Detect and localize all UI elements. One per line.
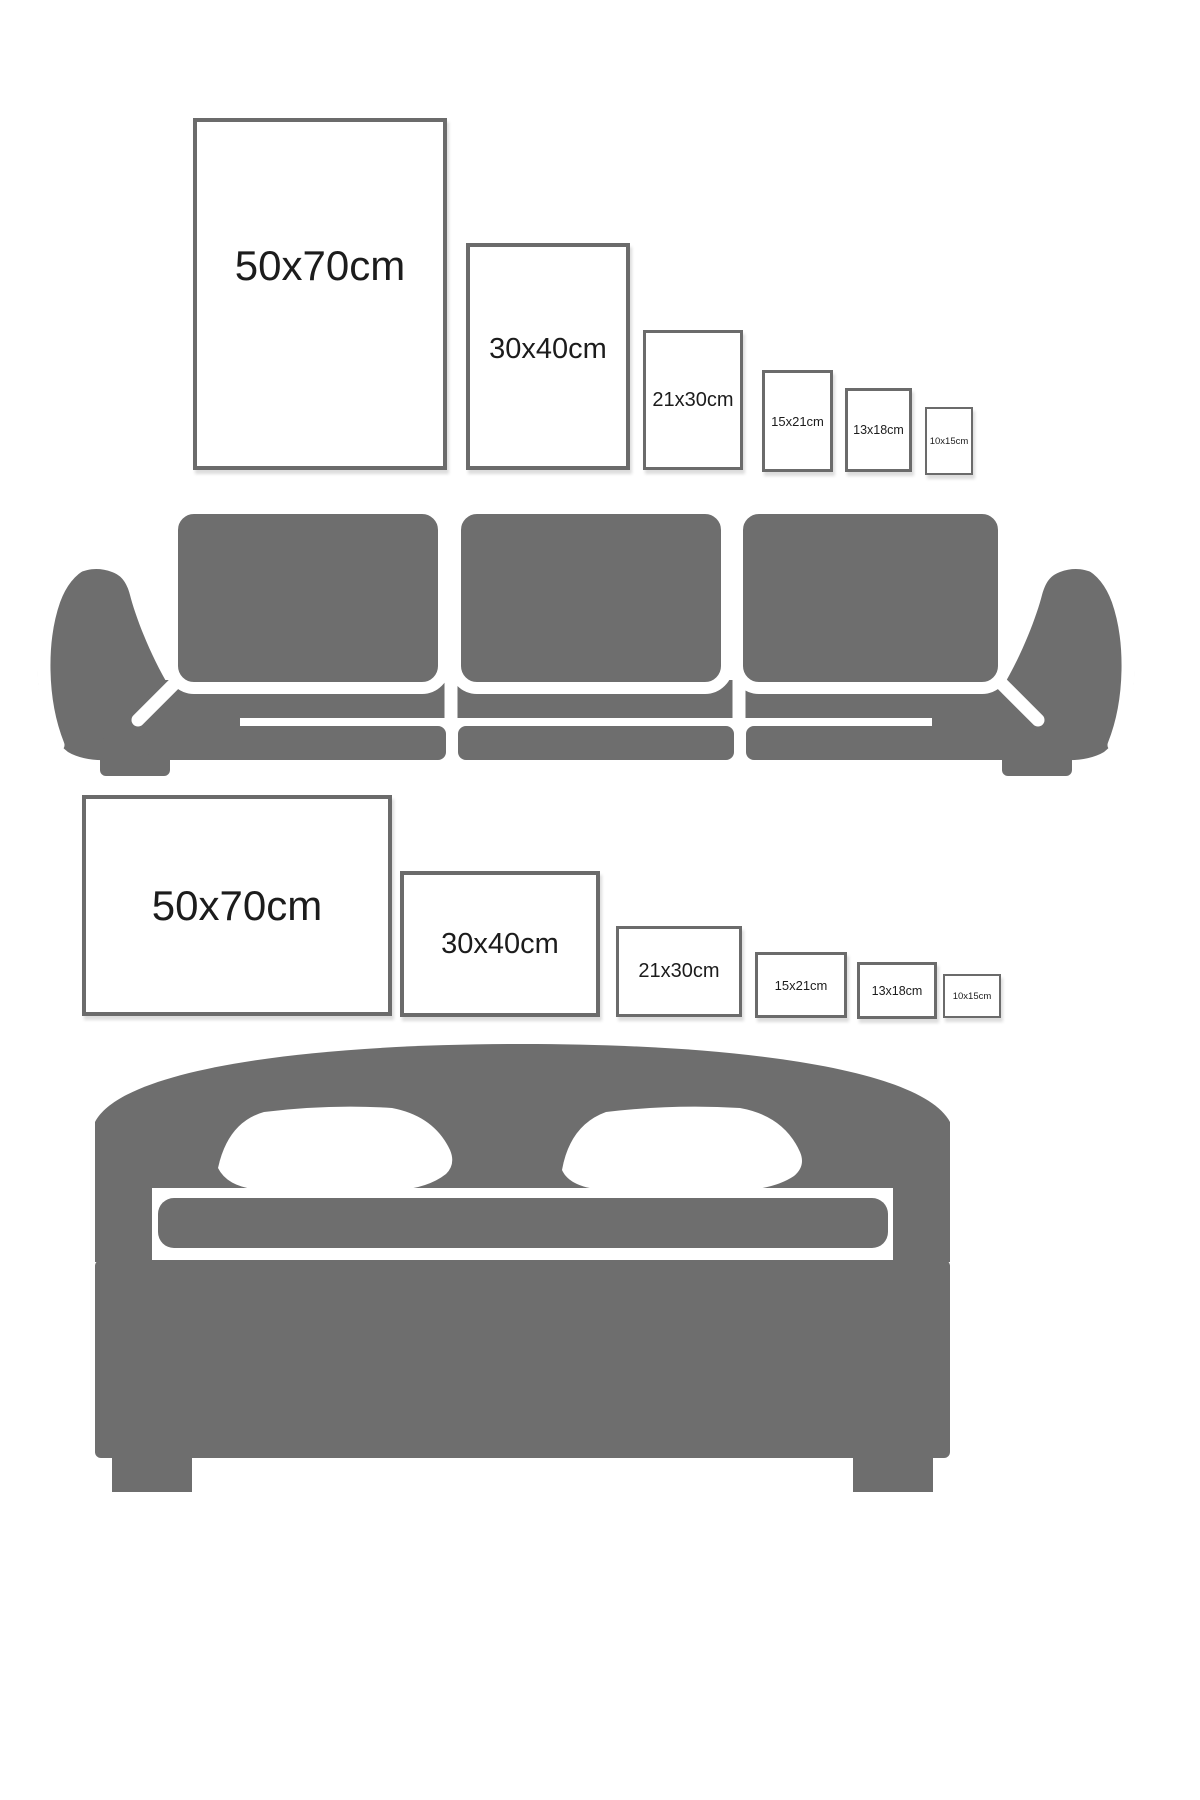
size-frame-portrait-50x70: 50x70cm	[193, 118, 447, 470]
bed-left-foot	[112, 1458, 192, 1492]
bed-right-foot	[853, 1458, 933, 1492]
size-frame-landscape-30x40: 30x40cm	[400, 871, 600, 1017]
size-label: 15x21cm	[771, 414, 824, 429]
size-label: 30x40cm	[489, 333, 607, 366]
size-label: 13x18cm	[872, 984, 923, 998]
sofa-illustration	[0, 430, 1200, 790]
size-label: 15x21cm	[775, 978, 828, 993]
size-label: 50x70cm	[152, 882, 322, 930]
size-label: 21x30cm	[652, 389, 733, 412]
size-frame-landscape-13x18: 13x18cm	[857, 962, 937, 1019]
bed-right-post	[893, 1150, 950, 1262]
sofa-back-cushion-2	[455, 508, 727, 688]
sofa-seat-cushion-3	[746, 726, 1036, 760]
bed-left-post	[95, 1150, 152, 1262]
bed-pillow-left	[218, 1107, 452, 1190]
size-frame-landscape-50x70: 50x70cm	[82, 795, 392, 1016]
bed-rail	[158, 1198, 888, 1248]
size-label: 30x40cm	[441, 928, 559, 961]
sofa-seat-cushion-1	[148, 726, 446, 760]
bed-illustration	[0, 1030, 1200, 1510]
size-label: 50x70cm	[235, 242, 405, 290]
sofa-back-cushion-1	[172, 508, 444, 688]
sofa-back-cushion-3	[737, 508, 1004, 688]
size-frame-landscape-10x15: 10x15cm	[943, 974, 1001, 1018]
bed-pillow-right	[562, 1107, 802, 1190]
size-label: 21x30cm	[638, 960, 719, 983]
size-frame-landscape-15x21: 15x21cm	[755, 952, 847, 1018]
size-label: 10x15cm	[953, 991, 992, 1002]
size-frame-landscape-21x30: 21x30cm	[616, 926, 742, 1017]
bed-base	[95, 1260, 950, 1458]
sofa-seat-cushion-2	[458, 726, 734, 760]
